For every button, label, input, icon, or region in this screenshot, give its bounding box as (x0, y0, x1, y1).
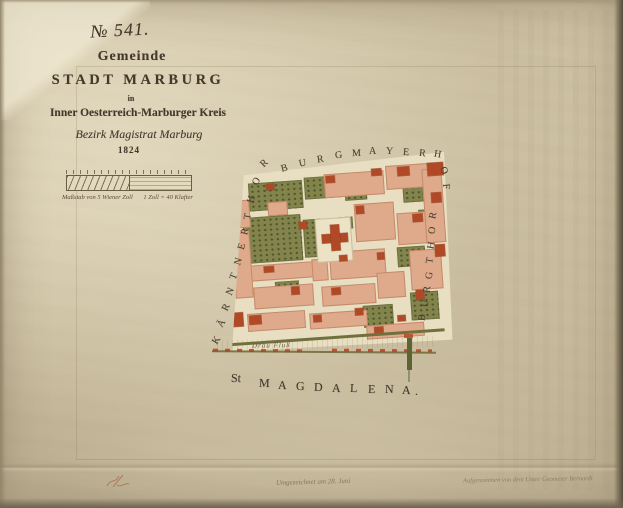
building-block (321, 283, 376, 307)
building-red (291, 286, 300, 295)
garden-patch (242, 214, 303, 264)
footer-ink-mark (103, 470, 133, 492)
scale-bar-caption: Maßstab von 5 Wiener Zoll 1 Zoll = 40 Kl… (62, 194, 202, 201)
map-sheet: № 541. Gemeinde STADT MARBURG in Inner O… (0, 0, 623, 508)
scale-bar-ticks (66, 170, 192, 174)
scale-caption-left: Maßstab von 5 Wiener Zoll (62, 194, 133, 201)
building-block (421, 168, 446, 243)
building-red (299, 222, 307, 230)
building-red (435, 244, 446, 257)
sheet-number: № 541. (78, 18, 163, 43)
alley-strip (407, 338, 412, 370)
building-red (412, 214, 423, 223)
scan-edge-bottom (0, 498, 623, 508)
building-red (330, 224, 341, 251)
scale-bar: Maßstab von 5 Wiener Zoll 1 Zoll = 40 Kl… (66, 170, 192, 206)
scale-bar-hatched-section (67, 176, 130, 190)
building-red (397, 166, 410, 176)
paper-crease (0, 463, 623, 472)
garden-patch (410, 291, 440, 321)
building-red (233, 312, 244, 327)
alley-strip-tail (408, 370, 410, 382)
building-red (264, 266, 274, 273)
building-red (371, 168, 381, 176)
river-label: Drau Fluß (252, 340, 342, 350)
building-red (355, 308, 363, 316)
building-red (431, 192, 442, 203)
building-red (326, 176, 335, 184)
year-label: 1824 (113, 145, 145, 155)
city-title: STADT MARBURG (47, 72, 229, 89)
building-block (253, 283, 314, 309)
scale-bar-ruler (66, 175, 192, 191)
building-red (313, 315, 321, 323)
alley-strip-cap (404, 334, 413, 338)
scan-edge-right (614, 0, 623, 508)
scan-edge-left (0, 0, 5, 508)
building-red (397, 315, 405, 322)
scale-caption-right: 1 Zoll = 40 Klafter (143, 194, 193, 201)
building-red (377, 252, 384, 259)
building-block (376, 271, 406, 299)
building-block (248, 261, 317, 282)
building-red (266, 184, 274, 191)
building-red (416, 290, 425, 301)
district-label: Bezirk Magistrat Marburg (63, 127, 215, 142)
gemeinde-label: Gemeinde (93, 49, 171, 65)
scale-bar-plain-section (130, 176, 191, 190)
scan-edge-top (0, 0, 623, 3)
footer-center-note: Umgezeichnet am 28. Juni (276, 475, 416, 487)
region-label: Inner Oesterreich-Marburger Kreis (42, 107, 234, 119)
building-red (339, 255, 347, 262)
in-label: in (120, 94, 142, 103)
building-red (427, 162, 444, 176)
building-red (356, 206, 365, 215)
building-red (331, 287, 340, 295)
building-red (249, 315, 262, 325)
building-block (267, 201, 288, 216)
